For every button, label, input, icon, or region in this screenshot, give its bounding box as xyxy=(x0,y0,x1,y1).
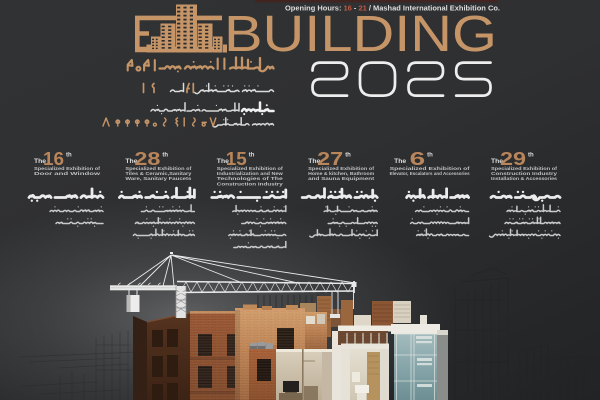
svg-text:Door and Window: Door and Window xyxy=(34,171,101,176)
svg-text:Elevator, Escalators and Acces: Elevator, Escalators and Accessories xyxy=(390,171,471,176)
svg-text:Construction Industry: Construction Industry xyxy=(217,181,284,186)
svg-text:th: th xyxy=(249,153,255,159)
svg-text:BUILDING: BUILDING xyxy=(224,5,497,62)
svg-text:th: th xyxy=(162,153,168,159)
svg-text:th: th xyxy=(427,153,433,159)
svg-text:th: th xyxy=(345,153,351,159)
svg-text:Installation & Accessories: Installation & Accessories xyxy=(491,176,558,181)
svg-text:The: The xyxy=(394,158,406,165)
svg-text:Ware, Sanitary Faucets: Ware, Sanitary Faucets xyxy=(125,176,192,181)
svg-text:th: th xyxy=(528,153,534,159)
svg-text:th: th xyxy=(66,153,72,159)
svg-text:and Sauna Equipment: and Sauna Equipment xyxy=(308,176,375,181)
